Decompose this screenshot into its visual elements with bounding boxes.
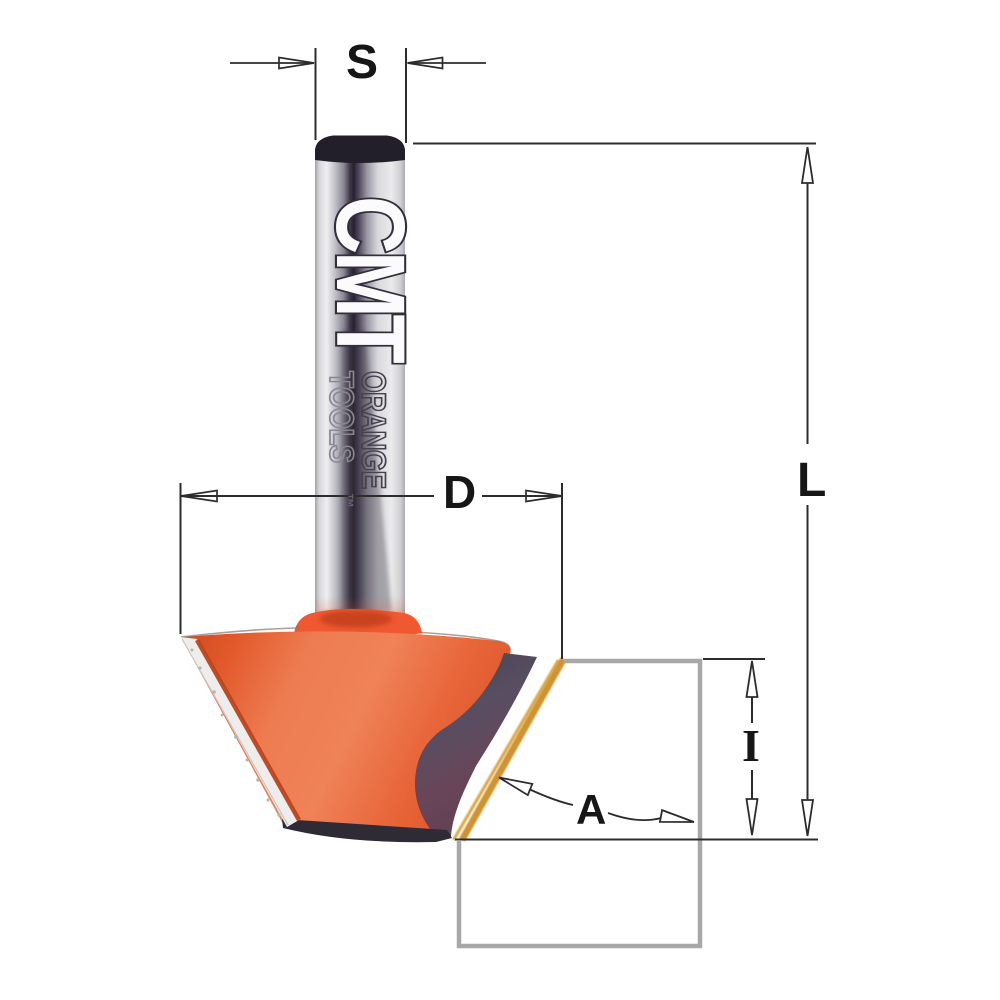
svg-text:A: A <box>576 786 606 833</box>
svg-text:L: L <box>797 454 826 507</box>
svg-text:CMT: CMT <box>316 196 425 363</box>
svg-text:I: I <box>742 720 760 771</box>
svg-text:™: ™ <box>339 493 356 508</box>
svg-text:D: D <box>443 466 476 518</box>
svg-text:S: S <box>346 36 378 89</box>
svg-text:TOOLS: TOOLS <box>322 371 360 463</box>
